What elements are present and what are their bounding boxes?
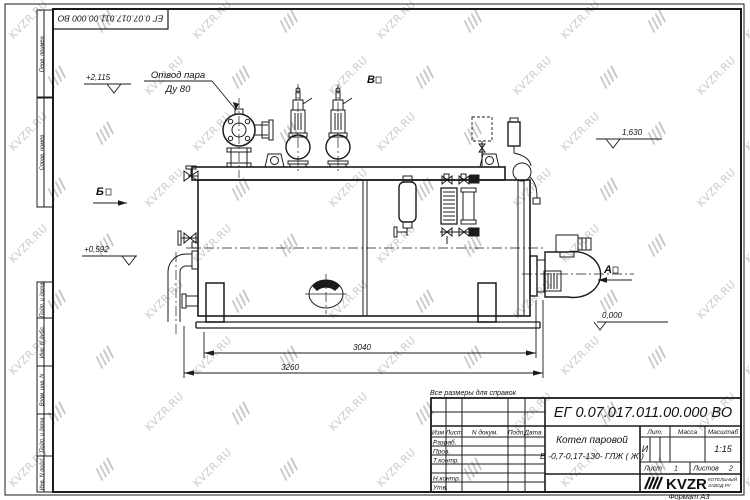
boiler-drawing (168, 84, 634, 334)
row-prov: Пров. (433, 449, 450, 456)
lit-label: Лит. (646, 429, 662, 436)
col-date: Дата (523, 430, 542, 437)
svg-text:В: В (367, 74, 375, 86)
sheets-value: 2 (728, 466, 733, 473)
left-top-valve (184, 166, 198, 181)
doc-number: ЕГ 0.07.017.011.00.000 ВО (554, 405, 732, 421)
sheets-label: Листов (692, 466, 719, 473)
margin-label: Инв. N дубл. (40, 326, 46, 358)
kvzr-logo-icon (645, 477, 662, 489)
margin-label: Справ. номер (40, 135, 46, 171)
phantom-box (472, 117, 492, 141)
top-corner-stamp: ЕГ 0.07.017.011.00.000 ВО (53, 9, 168, 29)
drawing-sheet: KVZR.RUKVZR.RUKVZR.RUKVZR.RUKVZR.RUKVZR.… (0, 0, 750, 500)
safety-valve-2 (326, 88, 352, 167)
sheet-value: 1 (674, 466, 678, 473)
steam-callout-line2: Ду 80 (165, 84, 191, 95)
kvzr-sub2: ЗАВОД.РУ (708, 483, 732, 488)
kvzr-brand: KVZR (666, 476, 707, 493)
product-name-line2: Е -0,7-0,17-130- ГЛЖ ( Ж ) (540, 451, 644, 461)
burner (530, 235, 601, 298)
safety-valve-1 (286, 88, 312, 167)
svg-text:А: А (603, 264, 612, 276)
kvzr-sub1: КОТЕЛЬНЫЙ (708, 475, 738, 482)
steam-callout-line1: Отвод пара (151, 70, 205, 81)
svg-text:+2,115: +2,115 (86, 73, 111, 82)
feed-elbow (168, 251, 198, 322)
sheet-label: Лист (643, 466, 662, 473)
margin-label: Взам. инв. N (40, 373, 46, 407)
lit-value: И (642, 444, 649, 454)
dimension-3040: 3040 (204, 300, 536, 358)
format-label: Формат А3 (668, 492, 710, 500)
svg-text:3040: 3040 (353, 343, 371, 352)
product-name-line1: Котел паровой (556, 435, 628, 446)
top-stamp-number: ЕГ 0.07.017.011.00.000 ВО (57, 14, 163, 24)
water-level-gauge (440, 174, 479, 244)
view-marker-v: В (367, 74, 381, 86)
callout-steam-outlet: Отвод пара Ду 80 (144, 70, 239, 110)
row-nkontr: Н.контр. (433, 476, 461, 483)
level-mark-0000: 0,000 (594, 311, 668, 330)
level-mark-2115: +2,115 (84, 73, 131, 93)
level-mark-0592: +0,592 (82, 245, 137, 265)
mass-label: Масса (678, 429, 698, 436)
drawing-canvas: Перв. примен. Справ. номер Подп. и дата … (0, 0, 750, 500)
reference-note: Все размеры для справок (430, 388, 517, 397)
svg-text:3260: 3260 (281, 363, 299, 372)
margin-label: Подп. и дата (40, 417, 46, 452)
scale-value: 1:15 (714, 444, 733, 454)
svg-text:1,630: 1,630 (622, 128, 643, 137)
margin-label: Инв. N подл. (40, 458, 46, 491)
level-sensor-vessel (394, 176, 416, 237)
lifting-lug-left (265, 154, 284, 167)
row-utv: Утв. (432, 485, 448, 492)
col-sign: Подп. (508, 429, 525, 437)
left-mid-valve (178, 231, 198, 248)
col-izm: Изм (432, 430, 445, 437)
boiler-shell (192, 167, 530, 316)
margin-label: Перв. примен. (40, 35, 46, 72)
svg-text:Б: Б (96, 186, 104, 198)
margin-label: Подп. и дата (40, 282, 46, 317)
lifting-lug-right (480, 154, 499, 167)
view-marker-a: А (598, 264, 632, 283)
kvzr-logo: KVZR КОТЕЛЬНЫЙ ЗАВОД.РУ (645, 475, 738, 493)
left-bottom-nozzle (182, 294, 198, 308)
view-marker-b: Б (93, 186, 127, 206)
row-razrab: Разраб. (433, 439, 457, 447)
annotations: Отвод пара Ду 80 +2,115 1,630 +0,592 0,0… (82, 70, 668, 397)
deck-sensor (479, 118, 540, 204)
row-tkontr: Т.контр. (433, 458, 459, 465)
svg-text:0,000: 0,000 (602, 311, 623, 320)
svg-text:+0,592: +0,592 (84, 245, 109, 254)
col-doc: N докум. (472, 429, 498, 437)
margin-stamp-labels: Перв. примен. Справ. номер Подп. и дата … (40, 35, 46, 490)
col-list: Лист (445, 430, 463, 437)
skid-rails (196, 322, 540, 328)
scale-label: Масштаб (708, 428, 739, 436)
manhole (305, 280, 347, 308)
level-mark-1630: 1,630 (596, 128, 662, 148)
steam-outlet-valve (223, 109, 273, 167)
